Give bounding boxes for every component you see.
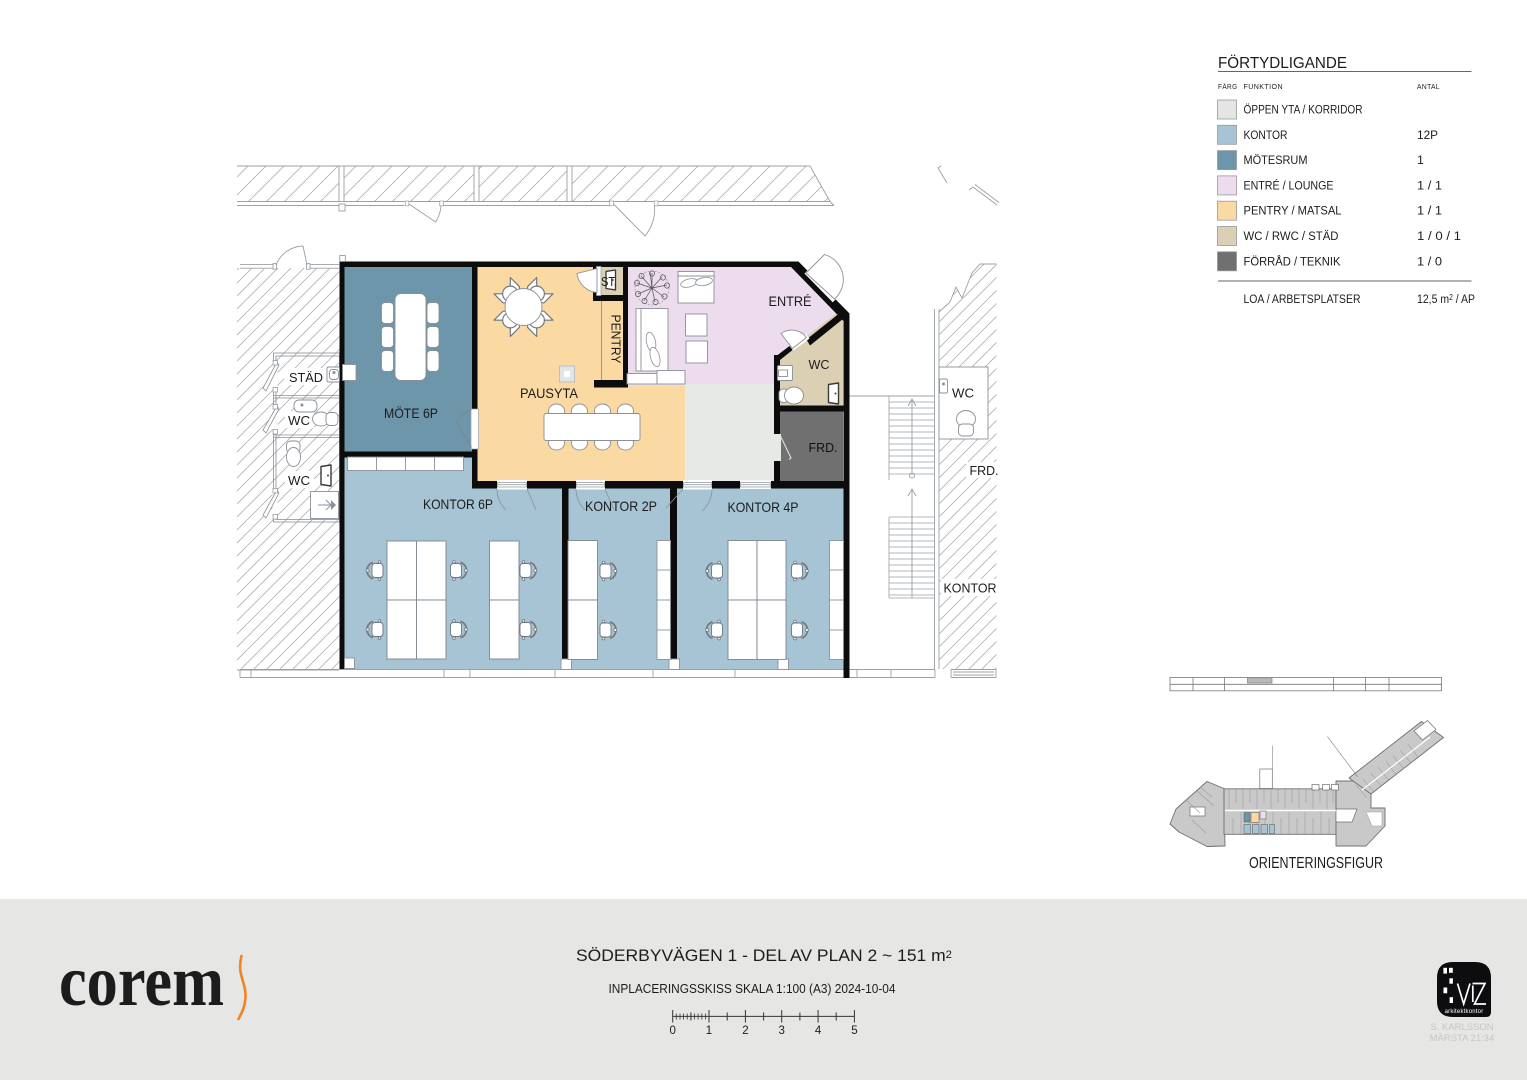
- svg-text:PAUSYTA: PAUSYTA: [520, 385, 579, 401]
- svg-text:WC: WC: [809, 358, 830, 372]
- svg-text:PENTRY / MATSAL: PENTRY / MATSAL: [1244, 204, 1342, 218]
- svg-text:3: 3: [778, 1025, 784, 1037]
- svg-text:KONTOR 6P: KONTOR 6P: [423, 496, 493, 512]
- svg-text:2: 2: [742, 1025, 748, 1037]
- svg-text:WC / RWC / STÄD: WC / RWC / STÄD: [1244, 229, 1339, 243]
- svg-text:STÄD: STÄD: [289, 371, 323, 385]
- svg-text:INPLACERINGSSKISS SKALA 1:100: INPLACERINGSSKISS SKALA 1:100 (A3) 2024-…: [609, 982, 896, 996]
- svg-text:FRD.: FRD.: [970, 464, 999, 478]
- svg-text:WC: WC: [288, 414, 310, 428]
- svg-text:corem: corem: [59, 941, 224, 1021]
- svg-text:FÄRG: FÄRG: [1218, 83, 1238, 91]
- svg-text:FÖRTYDLIGANDE: FÖRTYDLIGANDE: [1218, 54, 1347, 72]
- svg-text:WC: WC: [952, 387, 974, 401]
- svg-text:KONTOR: KONTOR: [944, 582, 997, 596]
- svg-text:ÖPPEN YTA / KORRIDOR: ÖPPEN YTA / KORRIDOR: [1244, 103, 1363, 117]
- svg-text:KONTOR 2P: KONTOR 2P: [585, 498, 657, 514]
- svg-text:1: 1: [706, 1025, 712, 1037]
- svg-text:ANTAL: ANTAL: [1417, 84, 1440, 91]
- svg-text:1: 1: [1417, 153, 1424, 167]
- svg-text:4: 4: [815, 1025, 822, 1037]
- svg-text:S. KARLSSON: S. KARLSSON: [1430, 1022, 1493, 1033]
- svg-text:MÖTESRUM: MÖTESRUM: [1244, 153, 1308, 167]
- svg-text:SÖDERBYVÄGEN 1 - DEL AV PLAN 2: SÖDERBYVÄGEN 1 - DEL AV PLAN 2 ~ 151 m2: [576, 946, 952, 965]
- svg-text:ST.: ST.: [601, 275, 617, 289]
- svg-text:LOA / ARBETSPLATSER: LOA / ARBETSPLATSER: [1244, 292, 1361, 306]
- svg-text:arkitektkontor: arkitektkontor: [1445, 1009, 1484, 1015]
- svg-text:MÖTE 6P: MÖTE 6P: [384, 404, 438, 421]
- svg-text:ENTRÉ / LOUNGE: ENTRÉ / LOUNGE: [1244, 177, 1334, 192]
- svg-text:12P: 12P: [1417, 128, 1438, 142]
- svg-text:1 / 0: 1 / 0: [1417, 254, 1442, 268]
- svg-text:1 / 1: 1 / 1: [1417, 178, 1442, 192]
- svg-text:FRD.: FRD.: [809, 441, 838, 455]
- svg-text:MÄRSTA 21:34: MÄRSTA 21:34: [1430, 1033, 1495, 1044]
- svg-text:KONTOR 4P: KONTOR 4P: [728, 499, 799, 515]
- svg-text:1 / 0 / 1: 1 / 0 / 1: [1417, 229, 1461, 243]
- svg-text:0: 0: [669, 1025, 675, 1037]
- svg-text:ORIENTERINGSFIGUR: ORIENTERINGSFIGUR: [1249, 855, 1383, 872]
- svg-text:KONTOR: KONTOR: [1244, 128, 1288, 142]
- svg-text:FÖRRÅD / TEKNIK: FÖRRÅD / TEKNIK: [1244, 253, 1342, 268]
- svg-text:FUNKTION: FUNKTION: [1244, 84, 1284, 91]
- svg-text:PENTRY: PENTRY: [609, 315, 623, 365]
- svg-text:WC: WC: [288, 474, 310, 488]
- svg-text:ENTRÉ: ENTRÉ: [769, 293, 812, 309]
- svg-text:1 / 1: 1 / 1: [1417, 204, 1442, 218]
- svg-text:12,5 m2 / AP: 12,5 m2 / AP: [1417, 292, 1475, 306]
- svg-text:5: 5: [851, 1025, 857, 1037]
